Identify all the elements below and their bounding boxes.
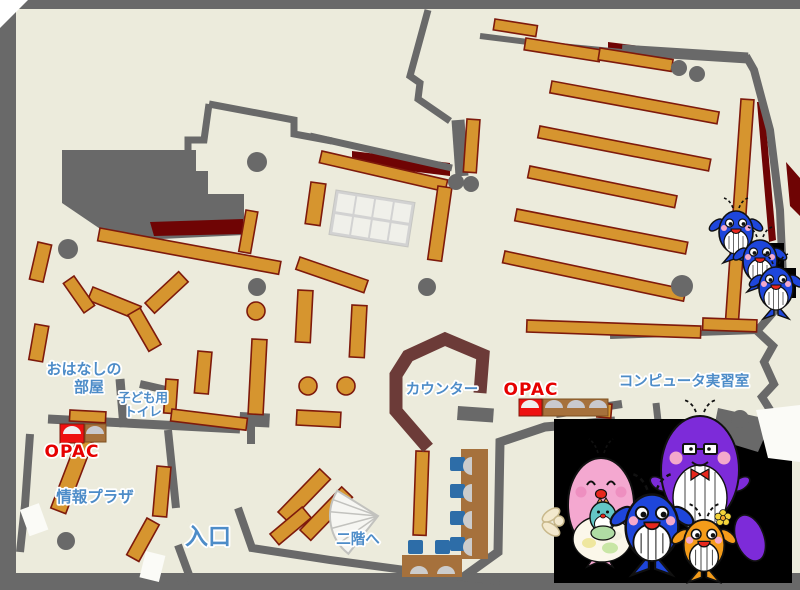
label-stairs-up: 二階へ	[336, 530, 380, 548]
floor-map-canvas: おはなしの 部屋 子ども用 トイレ OPAC 情報プラザ 入口 二階へ カウンタ…	[0, 0, 800, 590]
bookshelf	[296, 410, 341, 427]
counter-desk	[457, 406, 494, 422]
table-cell	[392, 202, 412, 222]
label-storytelling-room-line1: おはなしの	[46, 360, 121, 378]
table-cell	[351, 217, 371, 237]
chair	[450, 537, 465, 551]
pillar	[463, 176, 479, 192]
bookshelf	[413, 451, 429, 535]
pillar	[418, 278, 436, 296]
label-info-plaza: 情報プラザ	[56, 487, 134, 506]
pillar	[689, 66, 705, 82]
bookshelf	[463, 119, 480, 173]
mascot-family-panel	[540, 400, 800, 583]
table-cell	[336, 193, 356, 213]
table-cell	[354, 196, 374, 216]
chair	[435, 540, 450, 554]
round-table	[299, 377, 317, 395]
label-kids-toilet-line2: トイレ	[124, 404, 162, 419]
bookshelf	[295, 290, 313, 343]
pillar	[57, 532, 75, 550]
outer-wall-left	[0, 0, 16, 575]
label-entrance: 入口	[185, 524, 231, 550]
chair	[450, 484, 465, 498]
wall-segment	[458, 120, 462, 176]
label-counter: カウンター	[406, 381, 479, 398]
bookshelf	[248, 339, 267, 415]
wall-segment	[247, 426, 255, 444]
outer-wall-top	[0, 0, 800, 9]
bookshelf	[703, 318, 757, 332]
pillar	[731, 410, 749, 428]
table-cell	[370, 220, 390, 240]
pillar	[448, 174, 464, 190]
table-cell	[389, 223, 409, 243]
bookshelf	[194, 351, 212, 394]
pillar	[248, 278, 266, 296]
bookshelf	[349, 305, 367, 358]
bookshelf	[69, 410, 106, 423]
pillar	[247, 152, 267, 172]
table-cell	[332, 214, 352, 234]
chair	[450, 457, 465, 471]
label-opac-left: OPAC	[45, 442, 100, 462]
library-floor-map: おはなしの 部屋 子ども用 トイレ OPAC 情報プラザ 入口 二階へ カウンタ…	[0, 0, 800, 590]
pillar	[671, 60, 687, 76]
label-storytelling-room-line2: 部屋	[74, 378, 104, 396]
round-table	[247, 302, 265, 320]
chair	[408, 540, 423, 554]
pillar	[671, 275, 693, 297]
pillar	[58, 239, 78, 259]
dark-red-accent	[150, 219, 243, 236]
chair	[450, 511, 465, 525]
label-kids-toilet-line1: 子ども用	[118, 390, 168, 405]
label-opac-right: OPAC	[504, 380, 559, 400]
label-computer-room: コンピュータ実習室	[619, 372, 750, 390]
round-table	[337, 377, 355, 395]
table-cell	[373, 199, 393, 219]
